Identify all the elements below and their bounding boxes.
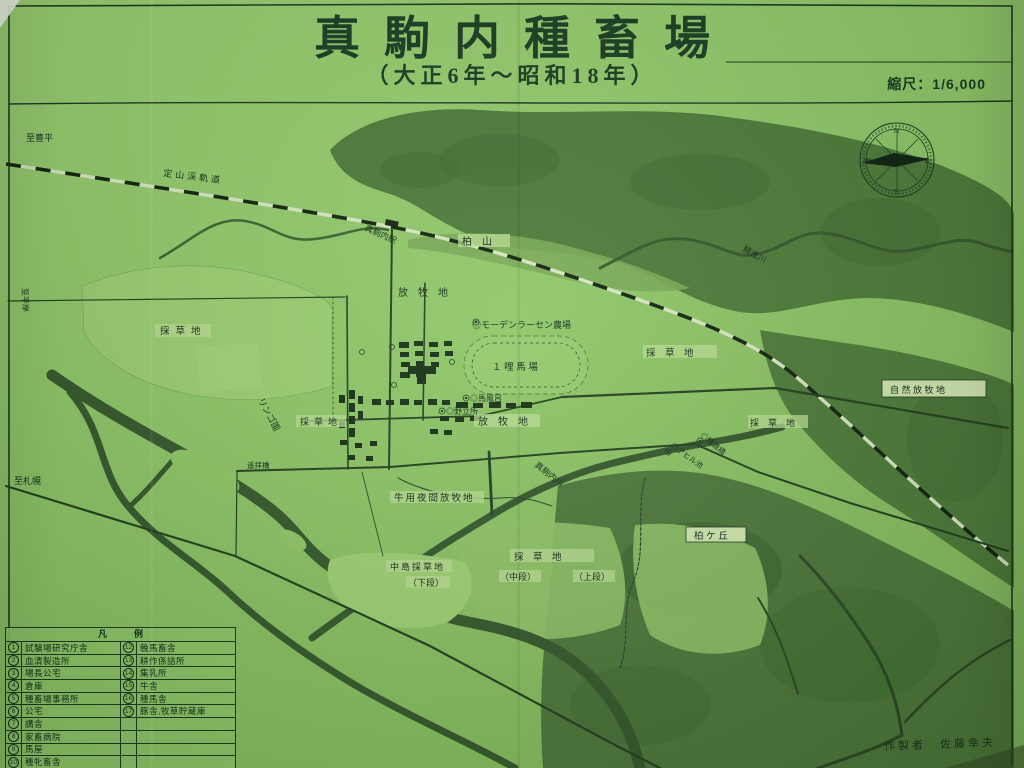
label-one-mile-track: １ 哩 馬 場 [492, 361, 538, 373]
legend-label: 輓馬畜舎 [137, 642, 176, 654]
apple-orchard-area [196, 344, 262, 392]
legend-number: 7 [8, 718, 19, 729]
legend-number: 17 [123, 706, 134, 717]
legend-row: 16種馬舎 [121, 693, 235, 706]
scale-label: 縮尺：1/6,000 [887, 74, 986, 94]
legend-number: 14 [123, 668, 134, 679]
legend-label: 場長公宅 [22, 667, 61, 679]
label-yohai-bridge: 遥拝橋 [247, 460, 270, 470]
label-apple-orchard: リンゴ園 [256, 396, 283, 433]
legend-row: 10種牝畜舎 [6, 756, 120, 768]
legend-row: 14集乳所 [121, 667, 235, 680]
page-subtitle: （大正6年～昭和18年） [0, 58, 1024, 90]
label-tier-upper: （上段） [574, 571, 610, 582]
label-jozankei-tramway: 定山渓軌道 [163, 167, 224, 185]
legend-row: 15牛舎 [121, 680, 235, 693]
forest-areas [330, 109, 1014, 768]
legend-number-cell: 16 [121, 693, 137, 705]
legend-number: 6 [8, 706, 19, 717]
legend-number-cell [121, 744, 137, 756]
legend-body: 1試験場研究庁舎 2血清製造所 3場長公宅 4倉庫 5種畜場事務所 6公宅 7講… [6, 642, 235, 768]
legend-label: 牛舎 [137, 680, 158, 692]
legend-number: 8 [8, 731, 19, 742]
legend-number: 13 [123, 655, 134, 666]
legend-number-cell: 15 [121, 680, 137, 692]
east-grid-road [423, 283, 425, 420]
compass-s: S [894, 189, 899, 196]
legend-number: 15 [123, 680, 134, 691]
legend-number-cell: 2 [6, 655, 22, 667]
label-larsen-farm: ◎モーデンラーセン農場 [472, 319, 571, 330]
label-to-sapporo: 至札幌 [14, 475, 41, 486]
label-tier-middle: （中段） [500, 571, 536, 582]
label-kashiwayama: 柏 山 [462, 235, 492, 248]
legend-number: 4 [8, 680, 19, 691]
label-pasture-north: 放 牧 地 [398, 286, 448, 299]
legend-row: 13耕作係詰所 [121, 655, 235, 668]
legend-label: 種馬舎 [137, 693, 167, 705]
legend-number-cell: 5 [6, 693, 22, 705]
legend-label: 倉庫 [22, 680, 43, 692]
legend-number-cell [121, 756, 137, 768]
legend-number-cell: 1 [6, 642, 22, 654]
header-rule [9, 101, 1012, 104]
legend-row [121, 718, 235, 731]
legend-number-cell: 12 [121, 642, 137, 654]
label-to-toyohira: 至豊平 [26, 132, 53, 143]
label-meadow-south: 採 草 地 [514, 551, 562, 563]
label-pasture-center: 放 牧 地 [478, 415, 528, 428]
legend-label: 種畜場事務所 [22, 693, 79, 705]
west-grid-road [347, 296, 348, 469]
label-to-hiragishi: 至平岸 [20, 288, 30, 312]
legend-row: 4倉庫 [6, 680, 120, 693]
compass-e: E [925, 158, 930, 165]
bridge-stub-road [489, 452, 492, 514]
legend-row [121, 731, 235, 744]
compass-rose: N E S W [860, 123, 934, 197]
legend-number-cell: 7 [6, 718, 22, 730]
upper-stream [160, 220, 388, 258]
legend-number: 16 [123, 693, 134, 704]
legend-row: 7講舎 [6, 718, 120, 731]
legend-label: 試験場研究庁舎 [22, 642, 88, 654]
legend-label: 豚舎,牧草貯蔵庫 [137, 705, 206, 717]
label-cattle-night-pasture: 牛用夜間放牧地 [394, 492, 475, 504]
legend-label: 馬屋 [22, 743, 43, 755]
legend-number: 10 [8, 757, 19, 768]
label-meadow-east-lower: 採 草 地 [750, 417, 795, 428]
legend-row [121, 744, 235, 757]
legend-label: 耕作係詰所 [137, 655, 185, 667]
legend-number-cell: 14 [121, 667, 137, 679]
main-office-building [408, 366, 436, 384]
label-tier-lower: （下段） [408, 577, 444, 588]
legend-number-cell: 10 [6, 756, 22, 768]
legend-header: 凡 例 [6, 628, 235, 642]
legend-number-cell [121, 731, 137, 743]
label-meadow-west: 採草地 [160, 325, 207, 337]
legend-column-left: 1試験場研究庁舎 2血清製造所 3場長公宅 4倉庫 5種畜場事務所 6公宅 7講… [6, 642, 121, 768]
legend-label: 家畜病院 [22, 731, 61, 743]
legend-row: 8家畜病院 [6, 731, 120, 744]
label-natural-pasture: 自 然 放 牧 地 [890, 384, 945, 395]
label-meadow-east-upper: 採 草 地 [646, 347, 694, 359]
legend-number-cell: 4 [6, 680, 22, 692]
legend-row: 2血清製造所 [6, 655, 120, 668]
legend-label: 血清製造所 [22, 655, 70, 667]
label-nodatesho: ◎野立所 [446, 406, 478, 416]
map-photo: N E S W 至豊平 定山渓軌道 真駒内駅 柏 山 精進川 放 牧 地 ◎モー… [0, 0, 1024, 768]
label-meadow-center: 採草地 [300, 416, 342, 427]
legend-number-cell: 9 [6, 744, 22, 756]
legend-label: 種牝畜舎 [22, 756, 61, 768]
legend-table: 凡 例 1試験場研究庁舎 2血清製造所 3場長公宅 4倉庫 5種畜場事務所 6公… [5, 627, 236, 768]
legend-number: 5 [8, 693, 19, 704]
legend-row [121, 756, 235, 768]
label-kashiwagaoka: 柏 ケ 丘 [694, 530, 728, 542]
legend-row: 1試験場研究庁舎 [6, 642, 120, 655]
legend-number-cell: 8 [6, 731, 22, 743]
legend-number: 1 [8, 642, 19, 653]
legend-row: 17豚舎,牧草貯蔵庫 [121, 705, 235, 718]
legend-label: 公宅 [22, 705, 43, 717]
legend-number: 2 [8, 655, 19, 666]
compass-n: N [894, 128, 899, 135]
legend-label: 講舎 [22, 718, 43, 730]
legend-column-right: 12輓馬畜舎 13耕作係詰所 14集乳所 15牛舎 16種馬舎 17豚舎,牧草貯… [121, 642, 235, 768]
legend-row: 6公宅 [6, 705, 120, 718]
legend-number-cell: 3 [6, 667, 22, 679]
legend-label: 集乳所 [137, 667, 167, 679]
legend-number-cell: 6 [6, 705, 22, 717]
legend-number-cell: 17 [121, 705, 137, 717]
legend-row: 12輓馬畜舎 [121, 642, 235, 655]
compass-w: W [864, 158, 871, 165]
legend-row: 3場長公宅 [6, 667, 120, 680]
legend-row: 5種畜場事務所 [6, 693, 120, 706]
legend-row: 9馬屋 [6, 744, 120, 757]
legend-number-cell [121, 718, 137, 730]
label-horse-bath: ◎馬風呂 [470, 394, 502, 403]
legend-number: 9 [8, 744, 19, 755]
legend-number: 12 [123, 642, 134, 653]
legend-number: 3 [8, 668, 19, 679]
fence-line-2 [362, 472, 383, 556]
legend-number-cell: 13 [121, 655, 137, 667]
label-nakajima-meadow: 中島採草地 [390, 561, 445, 572]
